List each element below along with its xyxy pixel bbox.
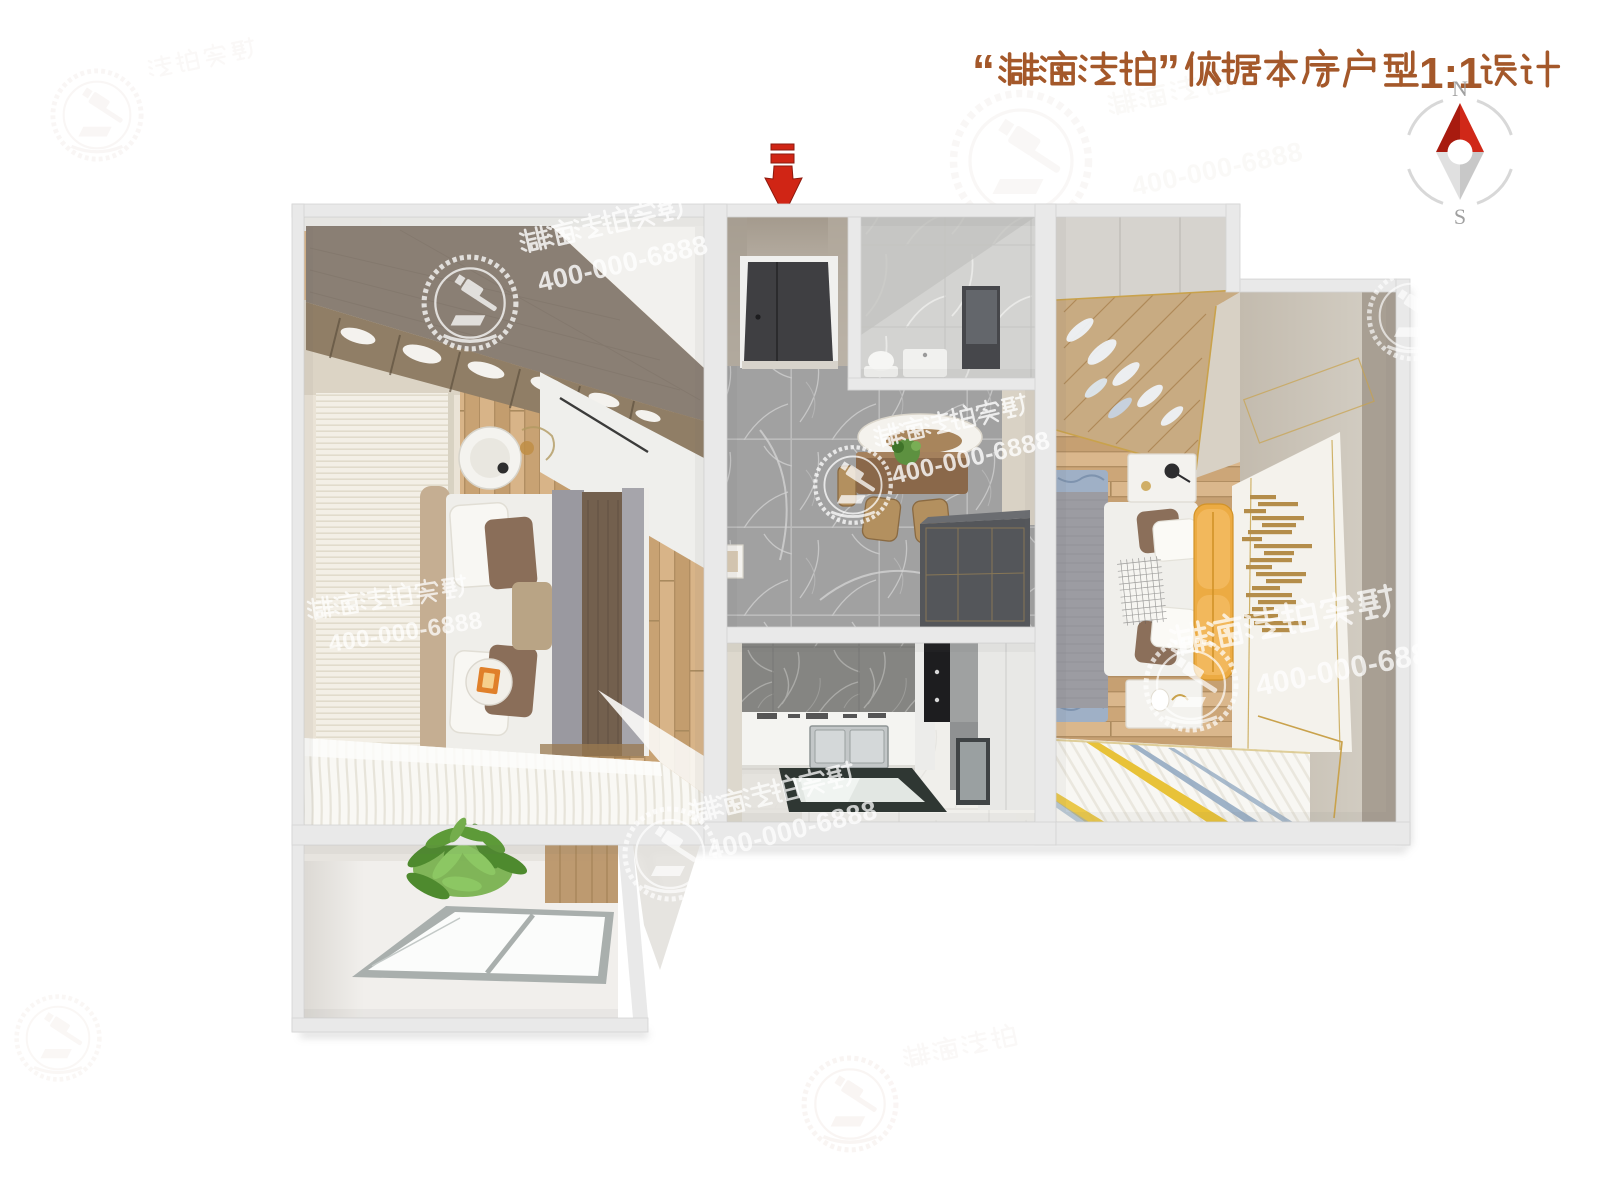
svg-text:1:1: 1:1 (1419, 49, 1483, 98)
svg-text:N: N (1452, 76, 1468, 101)
svg-text:“: “ (972, 45, 995, 97)
svg-text:S: S (1454, 204, 1466, 229)
svg-text:”: ” (1157, 45, 1180, 97)
